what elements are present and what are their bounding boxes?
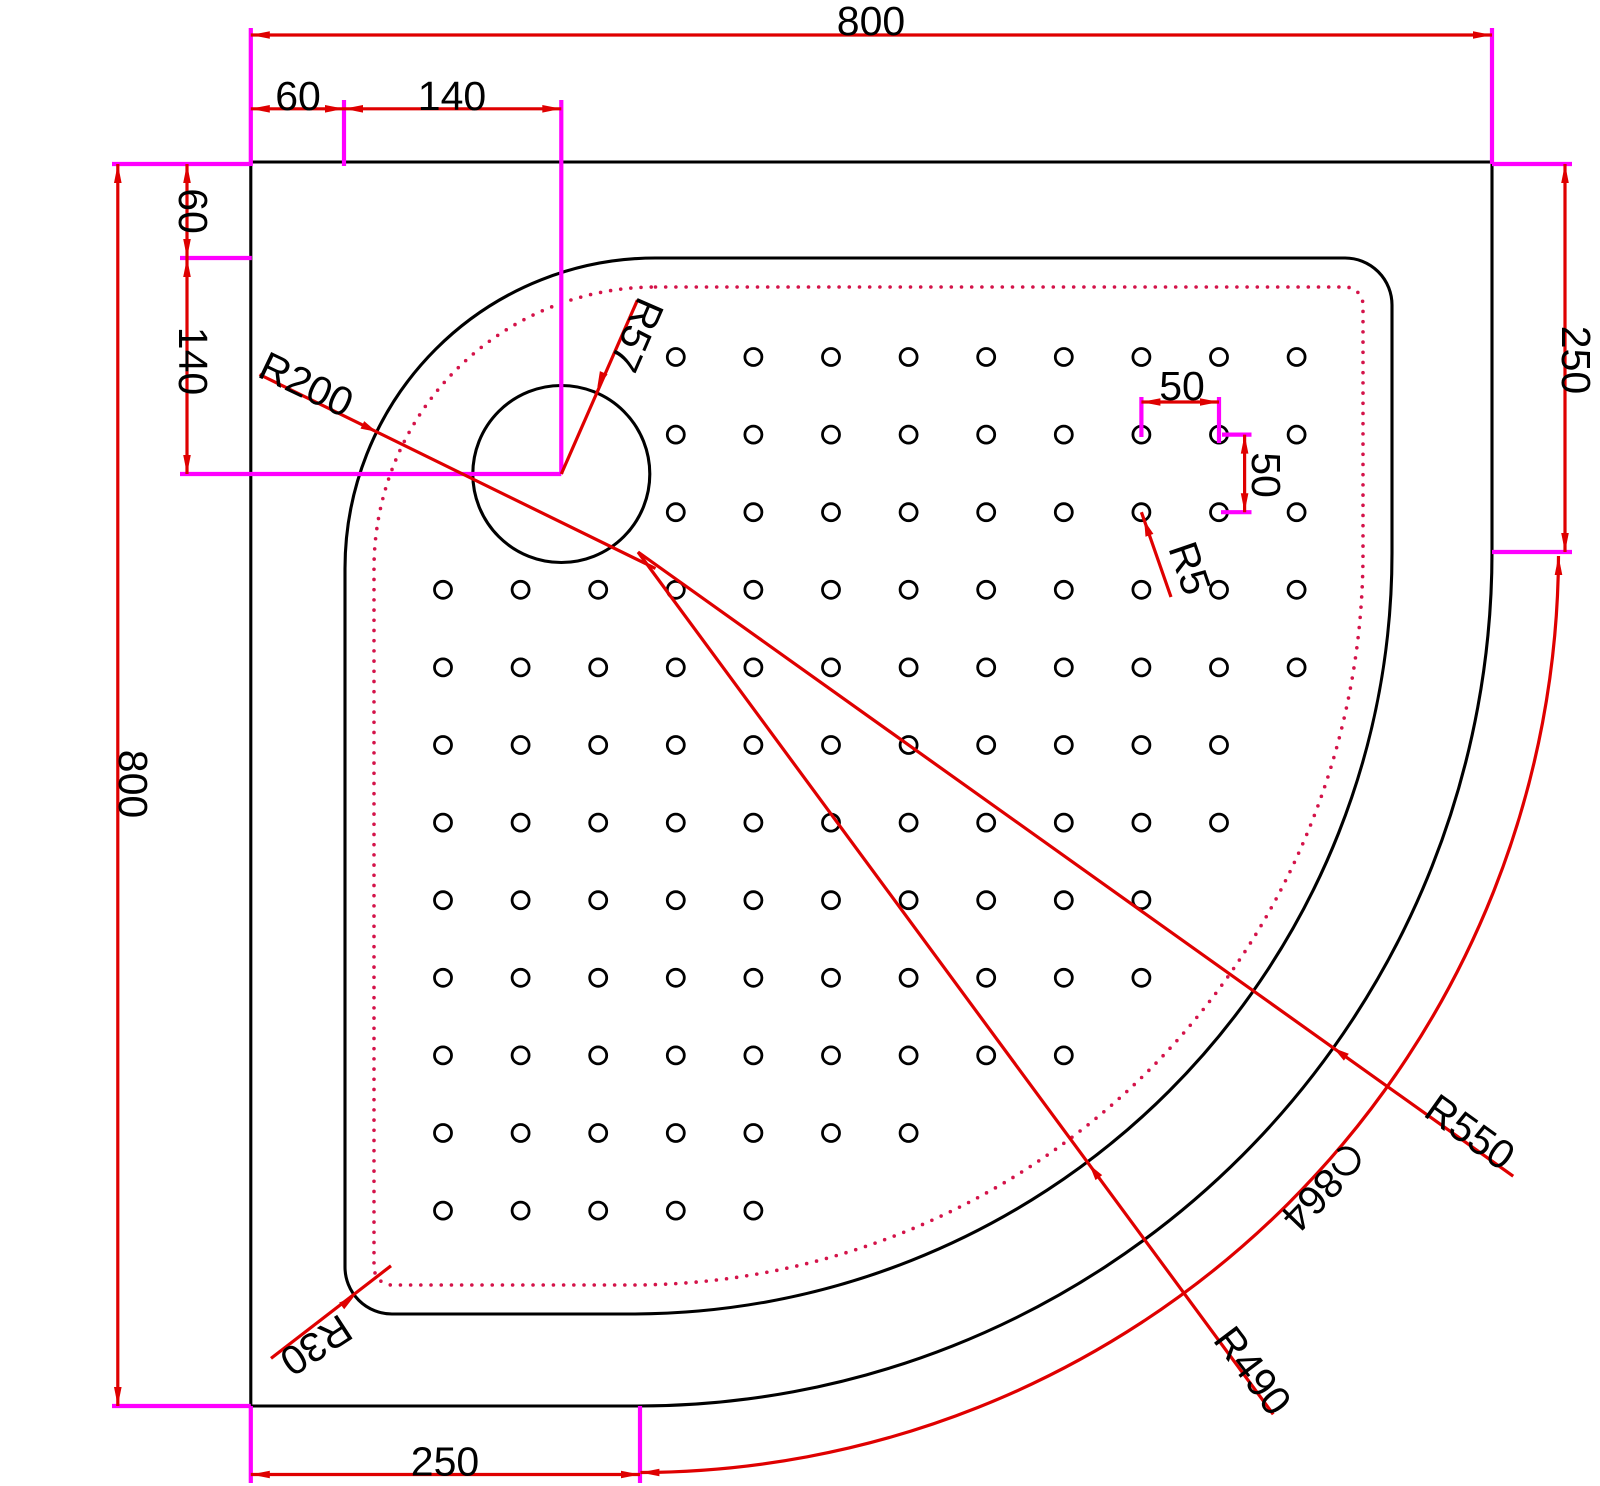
svg-text:800: 800 [110, 750, 156, 818]
svg-text:140: 140 [418, 73, 486, 119]
svg-text:50: 50 [1159, 363, 1205, 409]
svg-text:60: 60 [170, 188, 216, 234]
svg-text:140: 140 [170, 327, 216, 395]
svg-text:50: 50 [1243, 452, 1289, 498]
svg-text:60: 60 [275, 73, 321, 119]
svg-text:250: 250 [1553, 326, 1599, 394]
svg-text:800: 800 [837, 0, 905, 44]
svg-text:250: 250 [411, 1439, 479, 1485]
